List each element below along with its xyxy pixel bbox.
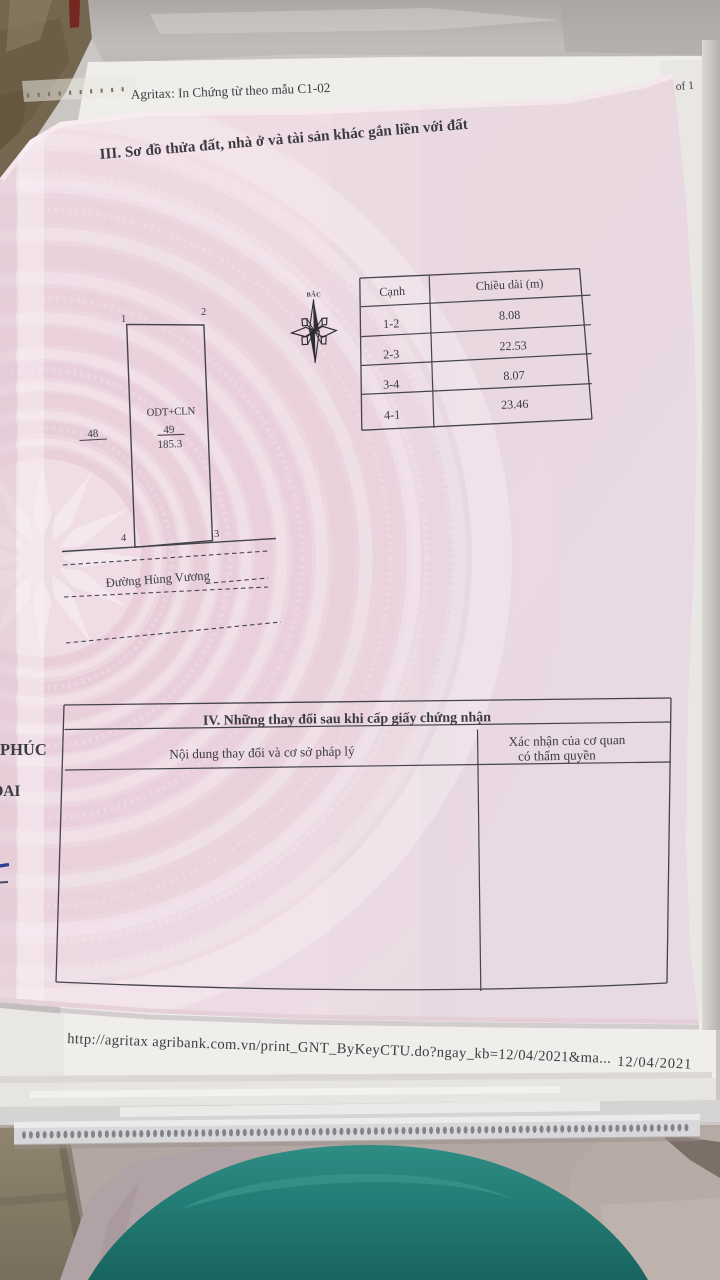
svg-text:1-2: 1-2: [383, 316, 400, 331]
svg-text:22.53: 22.53: [499, 338, 527, 353]
svg-text:3: 3: [214, 529, 219, 540]
svg-text:có thẩm quyền: có thẩm quyền: [518, 747, 596, 763]
svg-text:185.3: 185.3: [157, 438, 183, 451]
svg-text:4-1: 4-1: [384, 408, 401, 423]
svg-text:PHÚC: PHÚC: [0, 740, 47, 759]
svg-text:23.46: 23.46: [501, 397, 529, 412]
svg-text:1: 1: [121, 314, 126, 325]
svg-text:2-3: 2-3: [383, 347, 400, 362]
svg-text:48: 48: [87, 428, 99, 441]
svg-text:BẮC: BẮC: [306, 291, 321, 299]
svg-text:3-4: 3-4: [383, 377, 400, 392]
svg-text:ĐAI: ĐAI: [0, 783, 20, 800]
svg-text:ODT+CLN: ODT+CLN: [146, 405, 195, 419]
svg-text:of 1: of 1: [675, 80, 694, 93]
svg-text:Cạnh: Cạnh: [379, 284, 405, 299]
svg-text:2: 2: [201, 307, 206, 318]
svg-text:Chiều dài (m): Chiều dài (m): [476, 276, 544, 293]
svg-text:12/04/2021: 12/04/2021: [617, 1054, 693, 1073]
svg-text:8.07: 8.07: [503, 368, 525, 383]
svg-text:8.08: 8.08: [499, 308, 521, 323]
svg-text:Xác nhận của cơ quan: Xác nhận của cơ quan: [508, 732, 625, 749]
svg-text:4: 4: [121, 533, 127, 544]
